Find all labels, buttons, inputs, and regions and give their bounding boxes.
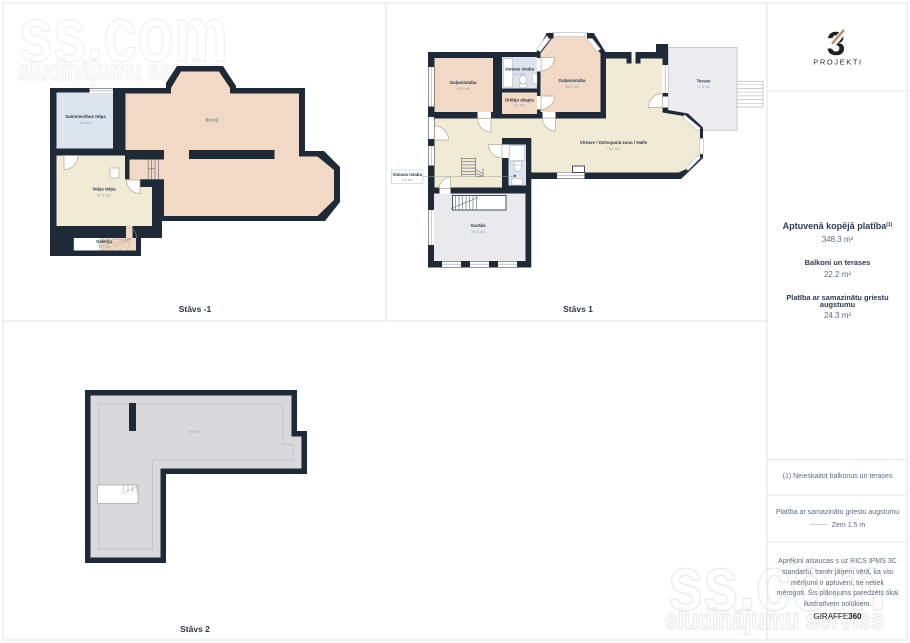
svg-text:8.0 m2: 8.0 m2: [80, 121, 92, 125]
svg-text:Virtuve / Dzīvojamā zona / Hal: Virtuve / Dzīvojamā zona / Halle: [580, 140, 648, 145]
svg-text:4.2 m2: 4.2 m2: [402, 178, 413, 182]
svg-text:Guļamistaba: Guļamistaba: [558, 78, 586, 83]
svg-text:Galerija: Galerija: [96, 239, 112, 244]
svg-text:Terase: Terase: [697, 79, 711, 84]
svg-text:4.7 m2: 4.7 m2: [514, 73, 525, 77]
svg-text:Vannas istaba: Vannas istaba: [505, 67, 535, 72]
svg-text:Garāža: Garāža: [470, 223, 486, 228]
svg-text:Vannas istaba: Vannas istaba: [393, 172, 423, 177]
svg-text:Stāvs 2: Stāvs 2: [180, 624, 210, 634]
svg-text:17.5 m2: 17.5 m2: [697, 85, 710, 89]
svg-text:5.0 m2: 5.0 m2: [99, 245, 110, 249]
svg-text:3.4 m2: 3.4 m2: [514, 104, 525, 108]
svg-text:80 m2: 80 m2: [206, 118, 219, 123]
svg-text:76.2 m2: 76.2 m2: [607, 147, 621, 151]
svg-text:PROJEKTI: PROJEKTI: [813, 58, 862, 67]
svg-text:26.3 m2: 26.3 m2: [471, 230, 485, 234]
svg-text:Stāvs 1: Stāvs 1: [563, 304, 593, 314]
svg-text:Saimniecības telpa: Saimniecības telpa: [65, 114, 106, 119]
svg-text:87 m²: 87 m²: [189, 429, 200, 434]
svg-text:20.4 m2: 20.4 m2: [97, 194, 111, 198]
svg-text:Guļamistaba: Guļamistaba: [449, 80, 477, 85]
svg-text:18.2 m2: 18.2 m2: [565, 85, 579, 89]
svg-text:Stāvs -1: Stāvs -1: [179, 304, 212, 314]
svg-text:Drēbju skapis: Drēbju skapis: [505, 98, 534, 103]
svg-text:14.0 m2: 14.0 m2: [456, 87, 470, 91]
svg-text:Veļas telpa: Veļas telpa: [92, 187, 116, 192]
